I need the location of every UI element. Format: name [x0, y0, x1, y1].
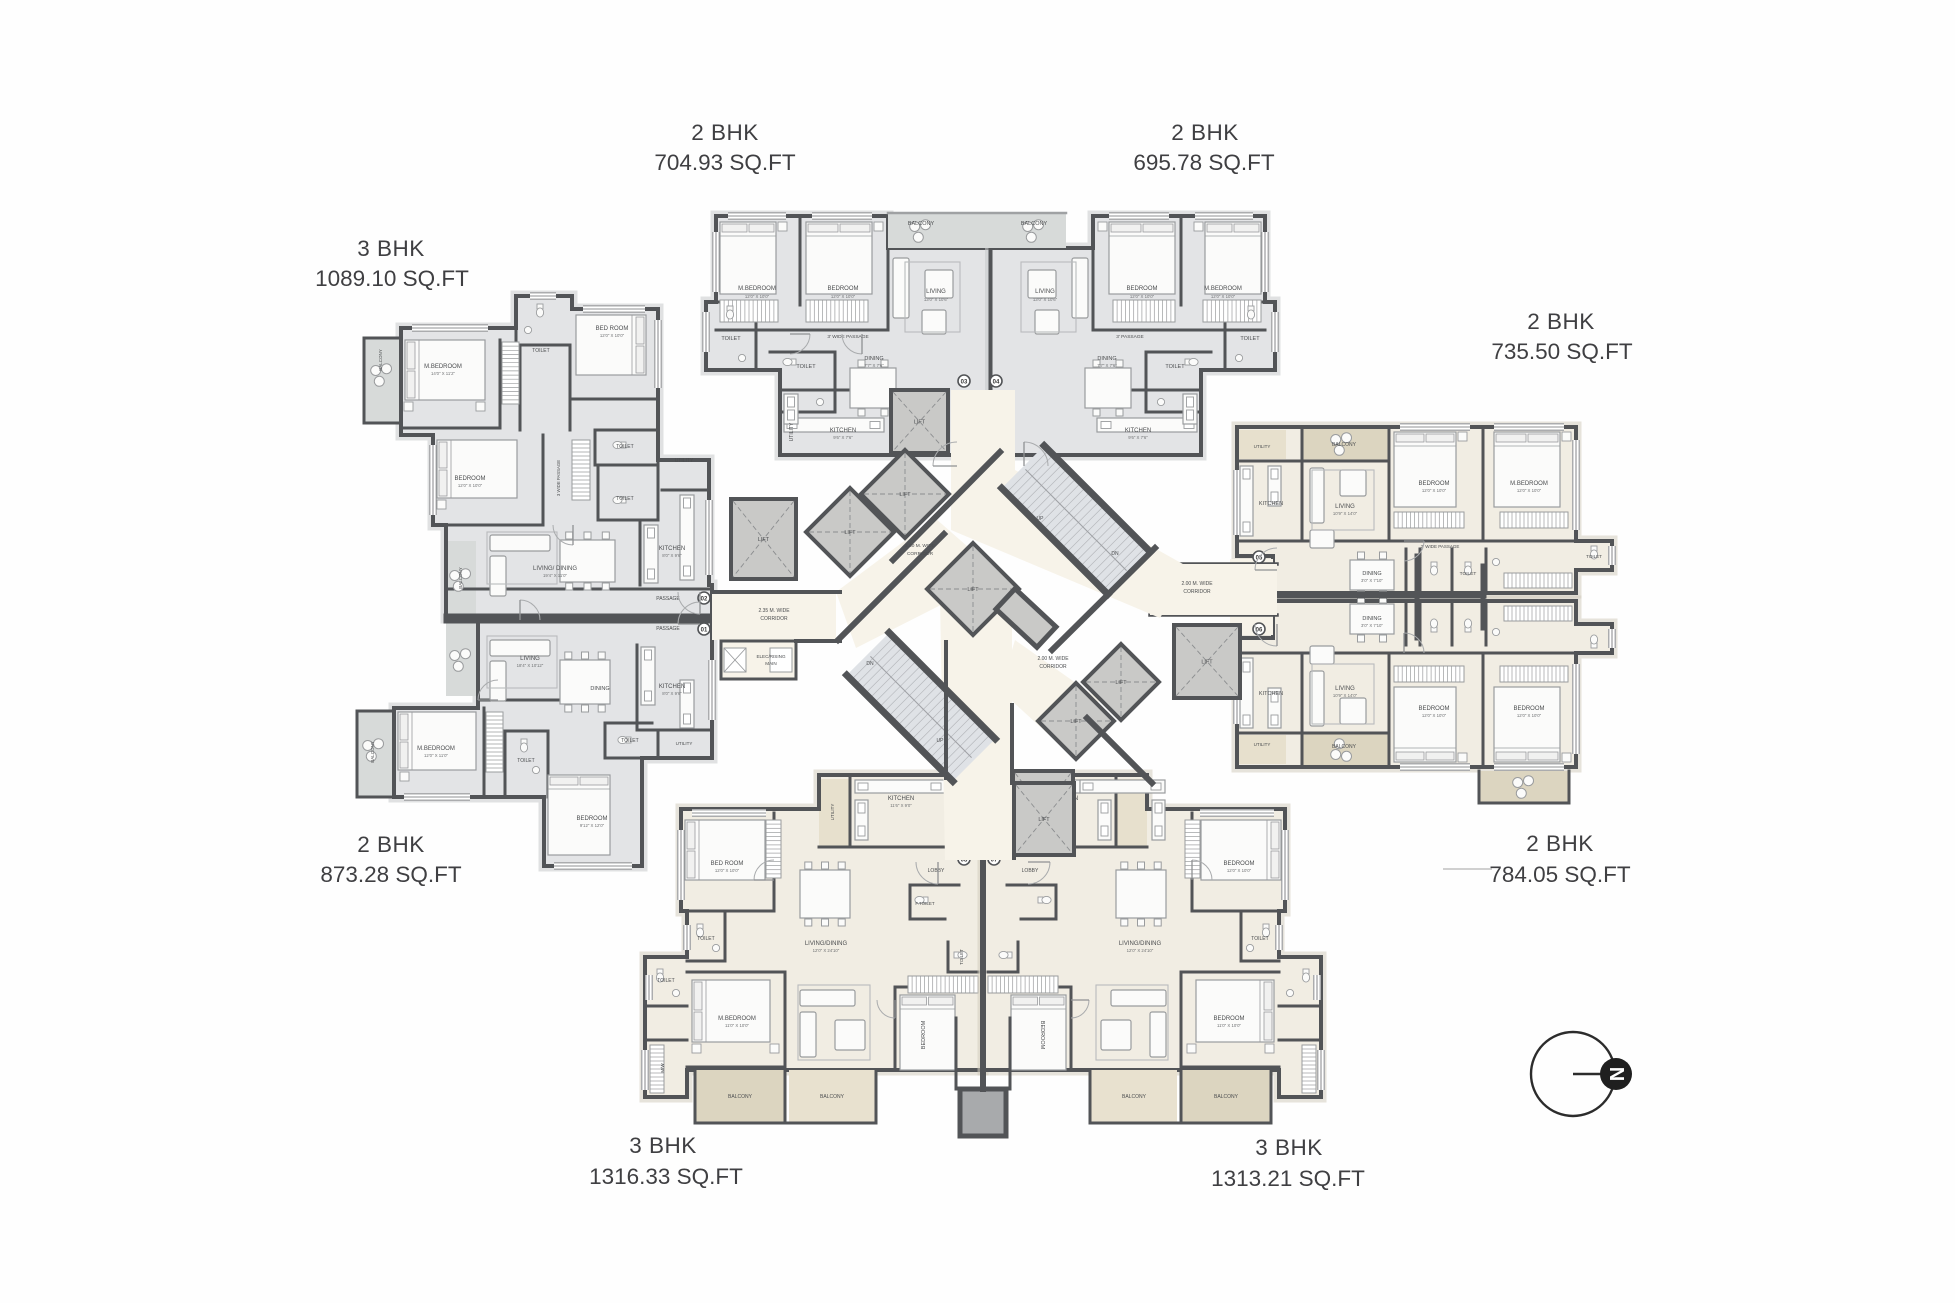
- svg-text:TOILET: TOILET: [697, 936, 714, 942]
- svg-text:LIVING: LIVING: [1035, 289, 1055, 295]
- svg-text:2 BHK: 2 BHK: [1526, 831, 1594, 856]
- svg-text:01: 01: [701, 627, 708, 633]
- svg-text:UP: UP: [1037, 516, 1045, 522]
- svg-text:LIVING/DINING: LIVING/DINING: [1119, 941, 1162, 947]
- svg-text:13'0" X 10'6": 13'0" X 10'6": [924, 297, 949, 302]
- svg-text:LIVING/DINING: LIVING/DINING: [805, 941, 848, 947]
- svg-text:LIFT: LIFT: [1201, 660, 1213, 666]
- svg-text:BEDROOM: BEDROOM: [1213, 1016, 1244, 1022]
- svg-text:2 BHK: 2 BHK: [691, 120, 759, 145]
- svg-text:3'0" X 7'10": 3'0" X 7'10": [1361, 623, 1383, 628]
- svg-text:12'0" X 10'0": 12'0" X 10'0": [1211, 294, 1236, 299]
- svg-text:LIFT: LIFT: [967, 587, 979, 593]
- svg-text:TOILET: TOILET: [1165, 364, 1185, 370]
- svg-text:BEDROOM: BEDROOM: [827, 286, 858, 292]
- svg-text:12'0" X 10'0": 12'0" X 10'0": [1227, 868, 1252, 873]
- svg-text:03: 03: [961, 379, 968, 385]
- svg-text:3 BHK: 3 BHK: [357, 236, 425, 261]
- svg-text:3 WIDE PASSAGE: 3 WIDE PASSAGE: [556, 460, 561, 496]
- svg-text:LIFT: LIFT: [844, 530, 856, 536]
- svg-text:12'0" X 10'0": 12'0" X 10'0": [1422, 488, 1447, 493]
- svg-text:9'6" X 7'6": 9'6" X 7'6": [833, 435, 853, 440]
- svg-text:12'0" X 10'0": 12'0" X 10'0": [1517, 488, 1542, 493]
- svg-text:10'9" X 14'0": 10'9" X 14'0": [1333, 511, 1358, 516]
- svg-text:M.BEDROOM: M.BEDROOM: [738, 286, 776, 292]
- svg-text:BEDROOM: BEDROOM: [1223, 861, 1254, 867]
- svg-text:TOILET: TOILET: [796, 364, 816, 370]
- svg-text:LIVING: LIVING: [1335, 686, 1355, 692]
- svg-text:784.05 SQ.FT: 784.05 SQ.FT: [1489, 862, 1631, 887]
- svg-text:12'0" X 10'0": 12'0" X 10'0": [831, 294, 856, 299]
- svg-text:DINING: DINING: [1362, 616, 1381, 622]
- svg-text:TOILET: TOILET: [517, 758, 534, 764]
- svg-text:3' PASSAGE: 3' PASSAGE: [1116, 334, 1144, 340]
- svg-text:UP: UP: [937, 738, 945, 744]
- svg-text:12'0" X 10'0": 12'0" X 10'0": [715, 868, 740, 873]
- svg-text:TOILET: TOILET: [532, 348, 549, 354]
- svg-text:UTILITY: UTILITY: [675, 458, 694, 464]
- svg-text:M.BEDROOM: M.BEDROOM: [417, 746, 455, 752]
- svg-text:695.78 SQ.FT: 695.78 SQ.FT: [1133, 150, 1275, 175]
- svg-text:DINING: DINING: [864, 356, 883, 362]
- svg-text:1316.33 SQ.FT: 1316.33 SQ.FT: [589, 1164, 743, 1189]
- svg-text:LIVING: LIVING: [926, 289, 946, 295]
- svg-text:BEDROOM: BEDROOM: [1126, 286, 1157, 292]
- svg-text:M.BEDROOM: M.BEDROOM: [424, 364, 462, 370]
- svg-text:M/W: M/W: [660, 1063, 665, 1073]
- svg-text:BED ROOM: BED ROOM: [711, 861, 744, 867]
- svg-text:BALCONY: BALCONY: [1122, 1094, 1147, 1100]
- svg-text:BALCONY: BALCONY: [820, 1094, 845, 1100]
- svg-text:2.00 M. WIDE: 2.00 M. WIDE: [905, 543, 935, 549]
- svg-text:12'0" X 11'0": 12'0" X 11'0": [424, 753, 448, 758]
- svg-text:BALCONY: BALCONY: [1214, 1094, 1239, 1100]
- svg-text:BED ROOM: BED ROOM: [596, 326, 629, 332]
- svg-text:12'0" X 10'0": 12'0" X 10'0": [458, 483, 483, 488]
- svg-text:BEDROOM: BEDROOM: [1039, 1021, 1045, 1050]
- svg-text:M.BEDROOM: M.BEDROOM: [1510, 481, 1548, 487]
- svg-text:DINING: DINING: [1362, 571, 1381, 577]
- svg-text:TOILET: TOILET: [616, 444, 633, 450]
- svg-text:3'0" X 7'10": 3'0" X 7'10": [1361, 578, 1383, 583]
- svg-text:13'0" X 10'6": 13'0" X 10'6": [1033, 297, 1058, 302]
- svg-text:2 BHK: 2 BHK: [1171, 120, 1239, 145]
- svg-text:KITCHEN: KITCHEN: [1125, 428, 1151, 434]
- svg-text:LOBBY: LOBBY: [928, 868, 945, 874]
- svg-text:TOILET: TOILET: [621, 738, 638, 744]
- svg-text:BEDROOM: BEDROOM: [454, 476, 485, 482]
- svg-text:BALCONY: BALCONY: [728, 1094, 753, 1100]
- svg-text:12'0" X 24'10": 12'0" X 24'10": [1127, 948, 1154, 953]
- svg-text:PASSAGE: PASSAGE: [656, 626, 680, 632]
- svg-text:2.00 M. WIDE: 2.00 M. WIDE: [1181, 581, 1213, 587]
- svg-text:LIVING/ DINING: LIVING/ DINING: [533, 566, 577, 572]
- svg-text:12'0" X 10'0": 12'0" X 10'0": [745, 294, 770, 299]
- svg-text:BALCONY: BALCONY: [378, 349, 383, 371]
- svg-text:BALCONY: BALCONY: [1332, 744, 1357, 750]
- svg-text:9'6" X 7'6": 9'6" X 7'6": [1128, 435, 1148, 440]
- svg-text:TOILET: TOILET: [1460, 571, 1477, 577]
- svg-text:TOILET: TOILET: [616, 496, 633, 502]
- svg-text:PASSAGE: PASSAGE: [656, 596, 680, 602]
- svg-text:BALCONY: BALCONY: [1332, 442, 1357, 448]
- svg-text:8'0" X 9'6": 8'0" X 9'6": [662, 553, 682, 558]
- svg-text:BALCONY: BALCONY: [1021, 221, 1048, 227]
- svg-text:2.00 M. WIDE: 2.00 M. WIDE: [1037, 656, 1069, 662]
- svg-text:CORRIDOR: CORRIDOR: [1183, 589, 1211, 595]
- svg-text:UTILITY: UTILITY: [830, 804, 835, 821]
- svg-text:704.93 SQ.FT: 704.93 SQ.FT: [654, 150, 796, 175]
- svg-text:LIFT: LIFT: [1070, 719, 1082, 725]
- svg-text:DINING: DINING: [590, 686, 609, 692]
- svg-text:735.50 SQ.FT: 735.50 SQ.FT: [1491, 339, 1633, 364]
- svg-text:TOILET: TOILET: [959, 949, 964, 965]
- svg-text:MAIN: MAIN: [765, 661, 776, 666]
- svg-text:TOILET: TOILET: [657, 978, 674, 984]
- svg-text:TOILET: TOILET: [721, 336, 741, 342]
- svg-text:12'0" X 10'0": 12'0" X 10'0": [1130, 294, 1155, 299]
- svg-text:7'7" X 7'6": 7'7" X 7'6": [1097, 363, 1117, 368]
- svg-text:LIFT: LIFT: [758, 537, 770, 543]
- svg-text:LIVING: LIVING: [1335, 504, 1355, 510]
- svg-text:DN: DN: [866, 661, 874, 667]
- svg-text:BEDROOM: BEDROOM: [1418, 481, 1449, 487]
- svg-text:DINING: DINING: [1097, 356, 1116, 362]
- svg-text:BEDROOM: BEDROOM: [576, 816, 607, 822]
- svg-text:DN: DN: [1111, 551, 1119, 557]
- svg-text:BEDROOM: BEDROOM: [1513, 706, 1544, 712]
- svg-text:11'0" X 10'0": 11'0" X 10'0": [725, 1023, 749, 1028]
- svg-text:2 BHK: 2 BHK: [357, 832, 425, 857]
- svg-text:KITCHEN: KITCHEN: [888, 796, 914, 802]
- svg-text:TOILET: TOILET: [1586, 554, 1602, 559]
- svg-text:LIFT: LIFT: [899, 492, 911, 498]
- svg-text:2.35 M. WIDE: 2.35 M. WIDE: [758, 608, 790, 614]
- svg-text:KITCHEN: KITCHEN: [1259, 691, 1283, 697]
- svg-text:3 BHK: 3 BHK: [1255, 1135, 1323, 1160]
- svg-text:KITCHEN: KITCHEN: [659, 684, 685, 690]
- svg-text:TOILET: TOILET: [1240, 336, 1260, 342]
- svg-text:LIFT: LIFT: [1038, 817, 1050, 823]
- svg-text:M.BEDROOM: M.BEDROOM: [1204, 286, 1242, 292]
- svg-text:UTILITY: UTILITY: [1254, 444, 1271, 449]
- svg-text:F.TOILET: F.TOILET: [915, 901, 934, 906]
- svg-text:04: 04: [993, 379, 1000, 385]
- svg-text:873.28 SQ.FT: 873.28 SQ.FT: [320, 862, 462, 887]
- svg-text:1089.10 SQ.FT: 1089.10 SQ.FT: [315, 266, 469, 291]
- svg-text:N: N: [1605, 1067, 1627, 1081]
- svg-text:KITCHEN: KITCHEN: [659, 546, 685, 552]
- svg-text:12'0" X 10'0": 12'0" X 10'0": [600, 333, 625, 338]
- svg-text:TOILET: TOILET: [1251, 936, 1268, 942]
- svg-text:BEDROOM: BEDROOM: [1418, 706, 1449, 712]
- svg-text:KITCHEN: KITCHEN: [830, 428, 856, 434]
- svg-text:19'4" X 11'0": 19'4" X 11'0": [543, 573, 567, 578]
- svg-text:BALCONY: BALCONY: [458, 567, 463, 589]
- svg-text:LIFT: LIFT: [914, 420, 926, 426]
- svg-text:12'0" X 10'0": 12'0" X 10'0": [1517, 713, 1542, 718]
- svg-text:ELEC/RISING: ELEC/RISING: [756, 654, 786, 659]
- svg-text:UTILITY: UTILITY: [1254, 742, 1271, 747]
- svg-text:8'0" X 9'6": 8'0" X 9'6": [662, 691, 682, 696]
- svg-text:UTILITY: UTILITY: [789, 422, 795, 441]
- svg-text:LIFT: LIFT: [1115, 680, 1127, 686]
- svg-text:CORRIDOR: CORRIDOR: [907, 551, 934, 557]
- svg-text:3' WIDE PASSAGE: 3' WIDE PASSAGE: [1421, 544, 1460, 549]
- svg-text:BALCONY: BALCONY: [908, 221, 935, 227]
- svg-text:12'0" X 10'0": 12'0" X 10'0": [1422, 713, 1447, 718]
- svg-text:CORRIDOR: CORRIDOR: [1039, 664, 1067, 670]
- svg-text:BEDROOM: BEDROOM: [921, 1020, 927, 1049]
- svg-text:11'0" X 10'0": 11'0" X 10'0": [1217, 1023, 1241, 1028]
- svg-text:18'4" X 10'12": 18'4" X 10'12": [517, 663, 544, 668]
- svg-text:BALCONY: BALCONY: [370, 741, 375, 763]
- svg-text:LOBBY: LOBBY: [1022, 868, 1039, 874]
- svg-text:UTILITY: UTILITY: [676, 741, 693, 746]
- svg-text:CORRIDOR: CORRIDOR: [760, 616, 788, 622]
- svg-text:12'0" X 24'10": 12'0" X 24'10": [813, 948, 840, 953]
- svg-text:10'9" X 14'0": 10'9" X 14'0": [1333, 693, 1358, 698]
- svg-text:14'0" X 11'2": 14'0" X 11'2": [431, 371, 455, 376]
- svg-text:11'6" X 9'0": 11'6" X 9'0": [890, 803, 912, 808]
- svg-text:KITCHEN: KITCHEN: [1259, 501, 1283, 507]
- svg-text:LIVING: LIVING: [520, 656, 540, 662]
- svg-text:3 BHK: 3 BHK: [629, 1133, 697, 1158]
- svg-text:1313.21 SQ.FT: 1313.21 SQ.FT: [1211, 1166, 1365, 1191]
- svg-text:2 BHK: 2 BHK: [1527, 309, 1595, 334]
- svg-text:9'12" X 12'0": 9'12" X 12'0": [580, 823, 605, 828]
- svg-text:02: 02: [701, 596, 708, 602]
- svg-text:M.BEDROOM: M.BEDROOM: [718, 1016, 756, 1022]
- svg-text:7'7" X 7'6": 7'7" X 7'6": [864, 363, 884, 368]
